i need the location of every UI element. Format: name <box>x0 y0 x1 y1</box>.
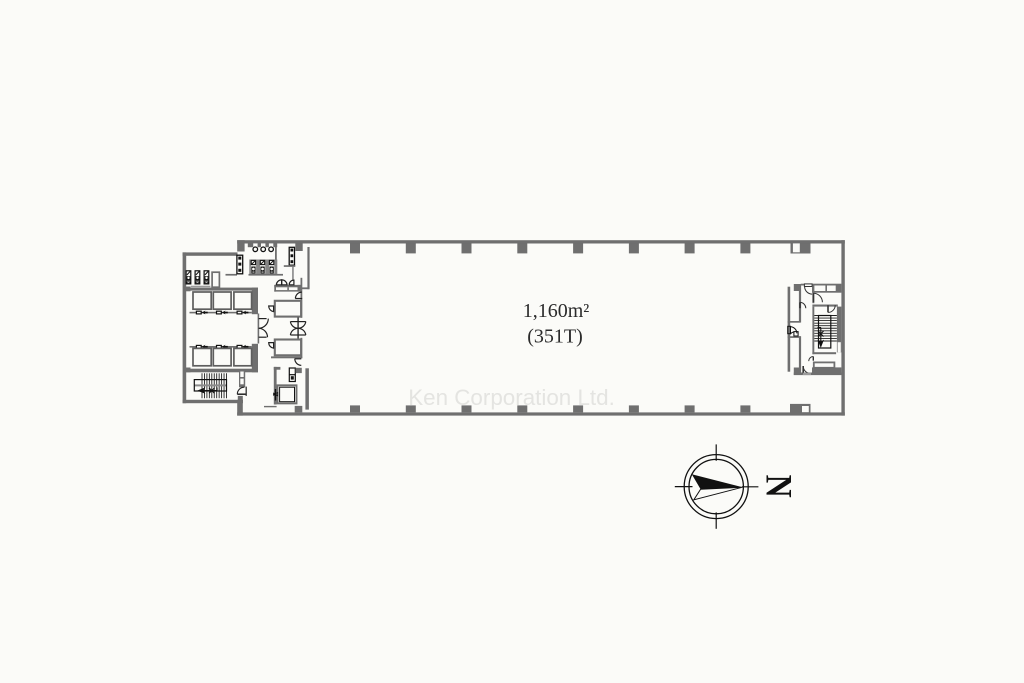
svg-text:1,160m²: 1,160m² <box>523 300 590 322</box>
svg-text:N: N <box>758 475 799 498</box>
svg-text:Ken Corporation Ltd.: Ken Corporation Ltd. <box>408 385 615 410</box>
svg-text:(351T): (351T) <box>527 326 583 348</box>
